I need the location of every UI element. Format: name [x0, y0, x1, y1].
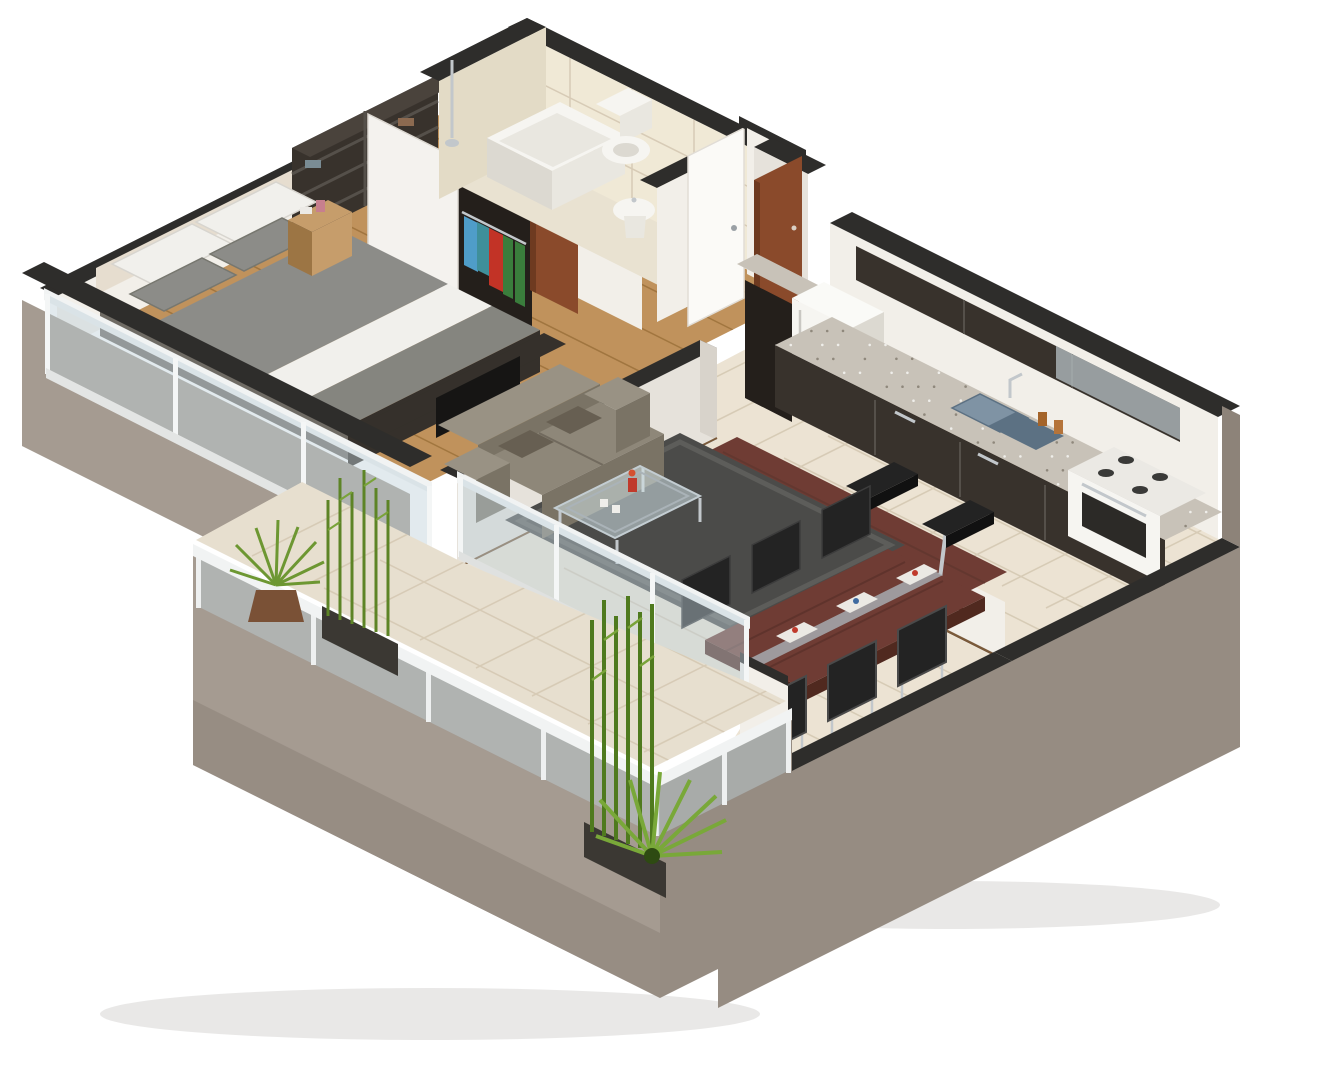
glass-wall-post	[554, 525, 559, 605]
east-corner-cap	[1222, 406, 1240, 547]
granite-speckle	[933, 385, 936, 388]
granite-speckle	[950, 427, 953, 430]
granite-speckle	[992, 441, 995, 444]
burner	[1132, 486, 1148, 494]
granite-speckle	[1056, 441, 1059, 444]
granite-speckle	[1057, 483, 1060, 486]
granite-speckle	[1062, 469, 1065, 472]
candle	[612, 505, 620, 513]
window-mullion	[45, 294, 50, 374]
hanging-garment-green	[515, 241, 525, 307]
grout-line	[1310, 420, 1344, 740]
granite-speckle	[1205, 511, 1208, 514]
glass-wall-post	[458, 477, 463, 557]
se-wall-cap	[700, 340, 717, 440]
nightstand-decor	[316, 200, 325, 212]
burner	[1152, 473, 1168, 481]
burner	[1098, 469, 1114, 477]
red-vase	[628, 478, 637, 492]
granite-speckle	[886, 386, 889, 389]
bidet-base	[624, 216, 646, 238]
palm-center	[644, 848, 660, 864]
burner	[1118, 456, 1134, 464]
place-decor	[792, 627, 798, 633]
jar	[1038, 412, 1047, 426]
hanging-shirt-teal	[477, 222, 489, 276]
granite-speckle	[864, 358, 867, 361]
granite-speckle	[843, 372, 846, 375]
granite-speckle	[912, 399, 915, 402]
nightstand-decor	[300, 207, 312, 214]
window-mullion	[173, 358, 178, 438]
hanging-shirt-blue	[464, 216, 478, 272]
granite-speckle	[1184, 525, 1187, 528]
granite-speckle	[837, 344, 840, 347]
granite-speckle	[1051, 455, 1054, 458]
vase-flower	[629, 470, 636, 477]
floor-plan-render	[0, 0, 1344, 1080]
granite-speckle	[832, 358, 835, 361]
shower-head	[445, 139, 459, 147]
door-handle	[731, 225, 737, 231]
granite-speckle	[1189, 511, 1192, 514]
granite-speckle	[1019, 455, 1022, 458]
granite-speckle	[816, 358, 819, 361]
granite-speckle	[890, 372, 893, 375]
plant-pot	[248, 590, 304, 622]
grout-line	[1222, 376, 1344, 696]
hanging-garment-green	[503, 235, 513, 299]
granite-speckle	[790, 344, 793, 347]
granite-speckle	[1003, 455, 1006, 458]
entry-door-handle	[792, 226, 797, 231]
railing-post	[786, 719, 791, 773]
granite-speckle	[917, 385, 920, 388]
granite-speckle	[964, 385, 967, 388]
railing-post	[311, 611, 316, 665]
granite-speckle	[826, 330, 829, 333]
granite-speckle	[842, 330, 845, 333]
granite-speckle	[821, 344, 824, 347]
jar	[1054, 420, 1063, 434]
hanging-shirt-red	[489, 228, 503, 292]
granite-speckle	[906, 372, 909, 375]
granite-speckle	[810, 330, 813, 333]
bidet-tap	[632, 198, 637, 203]
granite-speckle	[928, 399, 931, 402]
place-decor	[853, 598, 859, 604]
railing-post	[196, 554, 201, 608]
toilet-seat	[613, 143, 639, 157]
granite-speckle	[901, 385, 904, 388]
grout-line	[1266, 398, 1344, 718]
granite-speckle	[911, 358, 914, 361]
candle	[600, 499, 608, 507]
railing-post	[541, 726, 546, 780]
railing-post	[426, 668, 431, 722]
granite-speckle	[977, 441, 980, 444]
granite-speckle	[859, 372, 862, 375]
place-decor	[912, 570, 918, 576]
granite-speckle	[1071, 441, 1074, 444]
granite-speckle	[955, 413, 958, 416]
granite-speckle	[960, 399, 963, 402]
folded-clothes	[398, 118, 414, 126]
isometric-scene	[0, 0, 1344, 1080]
granite-speckle	[981, 427, 984, 430]
granite-speckle	[868, 344, 871, 347]
railing-post	[722, 751, 727, 805]
granite-speckle	[1066, 455, 1069, 458]
folded-clothes	[305, 160, 321, 168]
granite-speckle	[938, 371, 941, 374]
granite-speckle	[895, 358, 898, 361]
granite-speckle	[923, 413, 926, 416]
granite-speckle	[1046, 469, 1049, 472]
